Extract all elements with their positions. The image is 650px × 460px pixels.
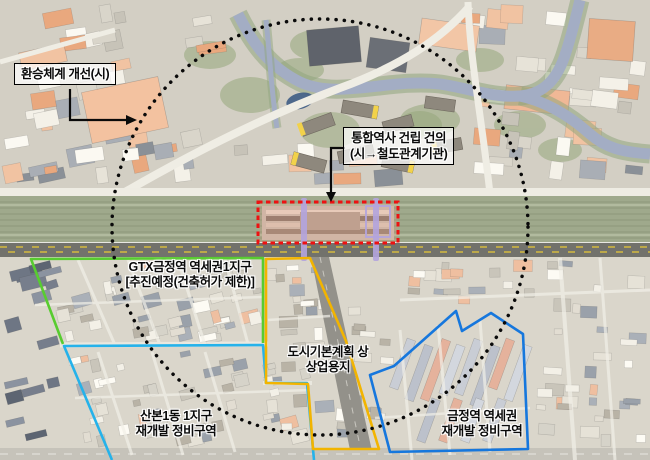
station-proposal-callout: 통합역사 건립 건의 (시→철도관계기관): [343, 127, 454, 165]
sanbon-zone-label-line1: 산본1동 1지구: [136, 409, 217, 424]
sanbon-zone-label-line2: 재개발 정비구역: [136, 424, 217, 439]
gtx-zone-label-line2: [추진예정(건축허가 제한)]: [125, 275, 254, 290]
sanbon-zone-label: 산본1동 1지구 재개발 정비구역: [136, 409, 217, 439]
commercial-zone-label-line1: 도시기본계획 상: [288, 345, 369, 360]
commercial-zone-label-line2: 상업용지: [288, 360, 369, 375]
geumjeong-zone-label: 금정역 역세권 재개발 정비구역: [442, 409, 523, 439]
station-proposal-line1: 통합역사 건립 건의: [350, 130, 447, 146]
annotated-aerial-map: 환승체계 개선(시) 통합역사 건립 건의 (시→철도관계기관) GTX금정역 …: [0, 0, 650, 460]
commercial-zone-label: 도시기본계획 상 상업용지: [288, 345, 369, 375]
frontage-road: [0, 188, 650, 196]
main-road: [0, 242, 650, 257]
gtx-zone-label-line1: GTX금정역 역세권1지구: [125, 260, 254, 275]
gtx-zone-label: GTX금정역 역세권1지구 [추진예정(건축허가 제한)]: [125, 260, 254, 290]
transfer-improvement-text: 환승체계 개선(시): [21, 66, 109, 82]
geumjeong-zone-label-line1: 금정역 역세권: [442, 409, 523, 424]
geumjeong-zone-label-line2: 재개발 정비구역: [442, 424, 523, 439]
transfer-improvement-callout: 환승체계 개선(시): [14, 63, 116, 85]
station-proposal-line2: (시→철도관계기관): [350, 146, 447, 162]
